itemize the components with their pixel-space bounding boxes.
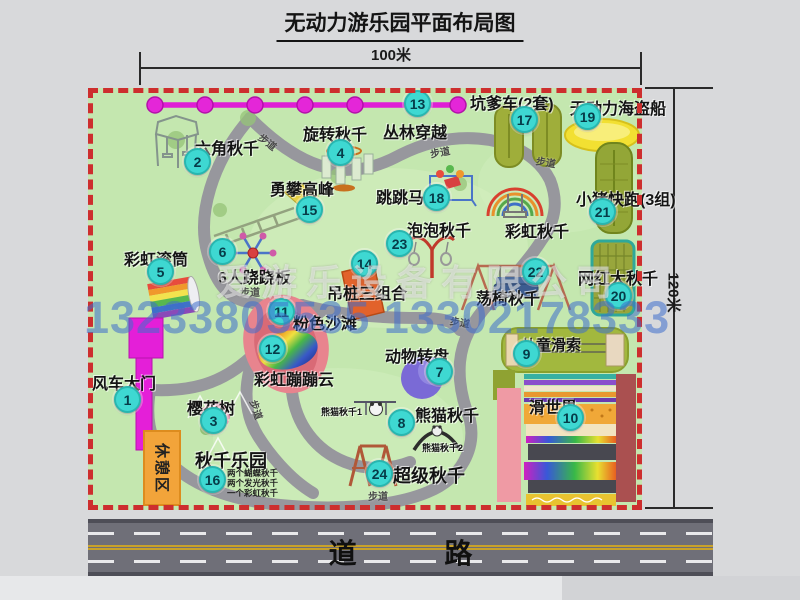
- dim-width-label: 100米: [140, 44, 642, 65]
- badge-7-animal-carousel: 7: [426, 358, 453, 385]
- dim-height-tick-top: [645, 87, 713, 89]
- badge-15-brave-climb: 15: [296, 196, 323, 223]
- bottom-strip-left: [0, 576, 562, 600]
- rest-area-label: 休憩区: [152, 442, 173, 493]
- label-panda-swing-1: 熊猫秋千1: [321, 405, 362, 418]
- badge-13-jungle-crossing: 13: [404, 90, 431, 117]
- path-label: 步道: [368, 488, 388, 503]
- slide-world-equipment: [493, 370, 636, 506]
- swing-park-note-3: 一个彩虹秋千: [227, 488, 278, 498]
- path-label: 步道: [535, 152, 557, 170]
- rest-area: 休憩区: [143, 430, 181, 506]
- label-rainbow-bounce-cloud: 彩虹蹦蹦云: [254, 366, 334, 390]
- label-panda-swing: 熊猫秋千: [415, 402, 479, 426]
- label-jumping-horse: 跳跳马: [376, 184, 424, 208]
- badge-10-slide-world: 10: [557, 404, 584, 431]
- badge-8-panda-swing: 8: [388, 409, 415, 436]
- swing-park-note-1: 两个蝴蝶秋千: [227, 468, 278, 478]
- badge-19-pirate-ship: 19: [574, 103, 601, 130]
- label-rainbow-swing: 彩虹秋千: [505, 218, 569, 242]
- screenshot-stage: 无动力游乐园平面布局图 100米 120米: [0, 0, 800, 600]
- badge-2-hexagon-swing: 2: [184, 148, 211, 175]
- label-kengdie-car: 坑爹车(2套): [470, 90, 554, 114]
- label-panda-swing-2: 熊猫秋千2: [422, 441, 463, 454]
- badge-3-cherry-tree: 3: [200, 407, 227, 434]
- label-super-swing: 超级秋千: [393, 462, 465, 488]
- badge-21-piggy-run: 21: [589, 198, 616, 225]
- badge-16-swing-park: 16: [199, 466, 226, 493]
- swing-park-notes: 两个蝴蝶秋千 两个发光秋千 一个彩虹秋千: [227, 468, 278, 498]
- dim-height-tick-bottom: [645, 507, 713, 509]
- badge-23-bubble-swing: 23: [386, 230, 413, 257]
- badge-9-kids-zipline: 9: [513, 340, 540, 367]
- badge-4-rotating-swing: 4: [327, 139, 354, 166]
- swing-park-note-2: 两个发光秋千: [227, 478, 278, 488]
- road: 道 路: [88, 519, 713, 576]
- badge-5-rainbow-roller: 5: [147, 258, 174, 285]
- badge-24-super-swing: 24: [366, 460, 393, 487]
- dim-width-line: [140, 67, 642, 69]
- bottom-strip-right: [562, 576, 800, 600]
- badge-17-kengdie-car: 17: [511, 106, 538, 133]
- park-map: 爱游乐设备有限公司 13233805535 13302178333 休憩区 步道…: [88, 88, 642, 510]
- label-jungle-crossing: 丛林穿越: [383, 119, 447, 143]
- road-label: 道 路: [88, 532, 713, 572]
- watermark-phone: 13233805535 13302178333: [84, 292, 670, 344]
- badge-18-jumping-horse: 18: [423, 184, 450, 211]
- label-bubble-swing: 泡泡秋千: [407, 217, 471, 241]
- page-title: 无动力游乐园平面布局图: [277, 7, 524, 42]
- badge-1-windmill-gate: 1: [114, 386, 141, 413]
- label-brave-climb: 勇攀高峰: [270, 176, 334, 200]
